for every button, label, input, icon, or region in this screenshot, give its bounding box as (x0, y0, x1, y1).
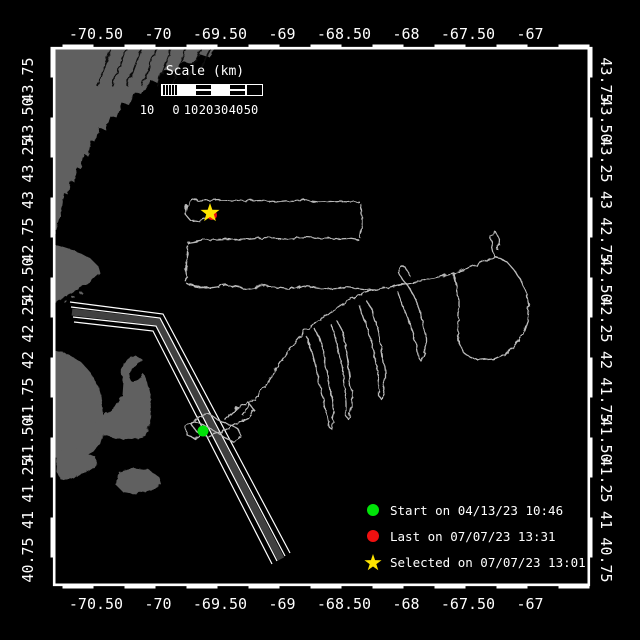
lon-tick-label-bottom: -70.50 (69, 595, 123, 613)
lon-tick-label-top: -69 (268, 25, 295, 43)
scale-bar-tick-label: 40 (229, 103, 243, 117)
lon-tick-label-bottom: -68.50 (317, 595, 371, 613)
lat-tick-label-left: 42.25 (19, 297, 37, 342)
scale-bar-title: Scale (km) (166, 64, 244, 79)
scale-bar-tick-label: 20 (199, 103, 213, 117)
lat-tick-label-left: 40.75 (19, 537, 37, 582)
map-content (53, 47, 528, 564)
lon-tick-label-bottom: -70 (144, 595, 171, 613)
lat-tick-label-right: 41.25 (597, 457, 615, 502)
lon-tick-label-top: -68.50 (317, 25, 371, 43)
scale-bar-segment-stripe (195, 84, 212, 96)
lat-tick-label-left: 42.75 (19, 217, 37, 262)
lat-tick-label-left: 43.25 (19, 137, 37, 182)
lon-tick-label-top: -70 (144, 25, 171, 43)
last-dot-icon (362, 526, 384, 546)
lat-tick-label-right: 42.50 (597, 257, 615, 302)
lat-tick-label-right: 43.75 (597, 57, 615, 102)
lon-tick-label-bottom: -69 (268, 595, 295, 613)
scale-bar (161, 84, 263, 96)
glider-track (373, 256, 494, 289)
land-polygon (53, 243, 99, 302)
legend-item[interactable]: Last on 07/07/23 13:31 (362, 523, 586, 549)
scale-bar-segment-solid (212, 84, 229, 96)
track-layer (184, 199, 528, 441)
legend: Start on 04/13/23 10:46Last on 07/07/23 … (362, 497, 586, 575)
lat-tick-label-left: 41.75 (19, 377, 37, 422)
selected-star-icon (362, 552, 384, 572)
lon-tick-label-top: -67.50 (441, 25, 495, 43)
legend-item[interactable]: Selected on 07/07/23 13:01 (362, 549, 586, 575)
lat-tick-label-right: 42.75 (597, 217, 615, 262)
islet (79, 291, 82, 294)
lat-tick-label-left: 43 (19, 191, 37, 209)
lat-tick-label-right: 42 (597, 351, 615, 369)
lon-tick-label-bottom: -67.50 (441, 595, 495, 613)
land-polygon (55, 448, 97, 479)
lat-tick-label-left: 43.75 (19, 57, 37, 102)
start-dot-icon (362, 500, 384, 520)
glider-track (306, 328, 333, 428)
scale-bar-segment-hollow (246, 84, 263, 96)
map-viewport: -70.50-70-69.50-69-68.50-68-67.50-67 -70… (0, 0, 640, 640)
lon-tick-label-bottom: -67 (516, 595, 543, 613)
scale-bar-tick-label: 0 (172, 103, 179, 117)
lat-tick-label-right: 41 (597, 511, 615, 529)
legend-label: Start on 04/13/23 10:46 (390, 503, 563, 518)
glider-track (331, 320, 351, 419)
lat-tick-label-left: 41.25 (19, 457, 37, 502)
glider-track (187, 284, 373, 289)
legend-item[interactable]: Start on 04/13/23 10:46 (362, 497, 586, 523)
islet (71, 295, 74, 298)
lat-tick-label-right: 43.25 (597, 137, 615, 182)
lon-tick-label-top: -70.50 (69, 25, 123, 43)
lat-tick-label-left: 43.50 (19, 97, 37, 142)
scale-bar-segment-solid (178, 84, 195, 96)
lat-tick-label-left: 41 (19, 511, 37, 529)
lat-tick-label-left: 42.50 (19, 257, 37, 302)
scale-bar-tick-label: 50 (244, 103, 258, 117)
scale-bar-tick-label: 30 (214, 103, 228, 117)
scale-bar-segment-stripe (229, 84, 246, 96)
lat-tick-label-right: 43.50 (597, 97, 615, 142)
scale-bar-tick-label: 10 (140, 103, 154, 117)
land-polygon (115, 467, 160, 493)
glider-track (192, 199, 359, 201)
lat-tick-label-left: 41.50 (19, 417, 37, 462)
lon-tick-label-bottom: -68 (392, 595, 419, 613)
land-polygon (53, 349, 103, 458)
glider-track (359, 203, 361, 237)
glider-track (185, 244, 186, 282)
lat-tick-label-right: 43 (597, 191, 615, 209)
lat-tick-label-right: 41.75 (597, 377, 615, 422)
legend-label: Selected on 07/07/23 13:01 (390, 555, 586, 570)
scale-bar-segment-hatch (161, 84, 178, 96)
lat-tick-label-right: 42.25 (597, 297, 615, 342)
lat-tick-label-left: 42 (19, 351, 37, 369)
islet (63, 299, 66, 302)
lat-tick-label-right: 41.50 (597, 417, 615, 462)
legend-label: Last on 07/07/23 13:31 (390, 529, 556, 544)
glider-track (359, 299, 384, 399)
lon-tick-label-top: -67 (516, 25, 543, 43)
glider-track (452, 230, 528, 359)
lon-tick-label-bottom: -69.50 (193, 595, 247, 613)
start-marker[interactable] (198, 426, 209, 437)
lon-tick-label-top: -68 (392, 25, 419, 43)
lat-tick-label-right: 40.75 (597, 537, 615, 582)
lon-tick-label-top: -69.50 (193, 25, 247, 43)
glider-track (241, 331, 304, 414)
glider-track (186, 236, 358, 242)
scale-bar-tick-label: 10 (184, 103, 198, 117)
